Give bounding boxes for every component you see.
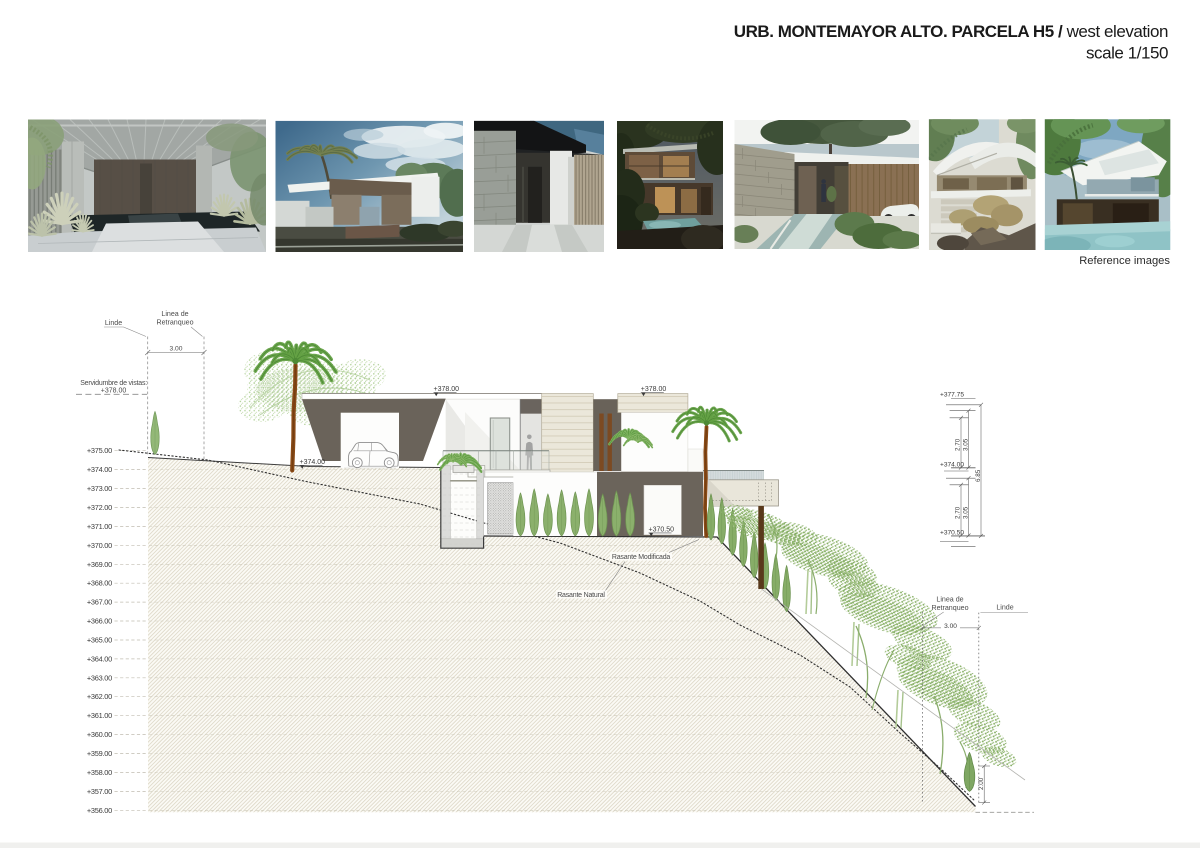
- svg-text:URB. MONTEMAYOR ALTO. PARCELA: URB. MONTEMAYOR ALTO. PARCELA H5 / west …: [734, 22, 1168, 41]
- svg-text:+372.00: +372.00: [87, 503, 112, 512]
- svg-text:+360.00: +360.00: [87, 730, 112, 739]
- svg-text:+378.00: +378.00: [434, 386, 460, 393]
- svg-text:+371.00: +371.00: [87, 522, 112, 531]
- svg-text:+367.00: +367.00: [87, 598, 112, 607]
- svg-text:+356.00: +356.00: [87, 806, 112, 815]
- svg-text:2.70: 2.70: [955, 438, 962, 451]
- svg-text:+361.00: +361.00: [87, 711, 112, 720]
- svg-text:+358.00: +358.00: [87, 768, 112, 777]
- svg-text:Reference images: Reference images: [1079, 255, 1170, 267]
- svg-text:+378.00: +378.00: [641, 386, 667, 393]
- svg-text:+359.00: +359.00: [87, 749, 112, 758]
- svg-text:Retranqueo: Retranqueo: [931, 604, 968, 612]
- svg-text:Linde: Linde: [105, 319, 122, 327]
- svg-text:Retranqueo: Retranqueo: [156, 318, 193, 326]
- svg-text:2.00: 2.00: [978, 777, 985, 790]
- svg-text:Linde: Linde: [996, 604, 1013, 612]
- svg-text:+370.50: +370.50: [940, 529, 964, 536]
- svg-text:3.00: 3.00: [169, 345, 182, 352]
- svg-text:3.00: 3.00: [944, 623, 957, 630]
- svg-text:+363.00: +363.00: [87, 673, 112, 682]
- svg-text:scale 1/150: scale 1/150: [1086, 44, 1168, 63]
- svg-text:+370.00: +370.00: [87, 541, 112, 550]
- svg-text:+357.00: +357.00: [87, 787, 112, 796]
- svg-text:+374.00: +374.00: [300, 459, 326, 466]
- svg-text:Servidumbre de vistas:: Servidumbre de vistas:: [80, 380, 147, 387]
- svg-text:+377.75: +377.75: [940, 391, 964, 398]
- svg-text:+368.00: +368.00: [87, 579, 112, 588]
- svg-text:+365.00: +365.00: [87, 636, 112, 645]
- svg-text:+366.00: +366.00: [87, 617, 112, 626]
- svg-text:Rasante Natural: Rasante Natural: [557, 592, 605, 599]
- svg-text:Linea de: Linea de: [161, 310, 188, 318]
- svg-text:+370.50: +370.50: [649, 527, 675, 534]
- svg-text:+375.00: +375.00: [87, 446, 112, 455]
- svg-text:Linea de: Linea de: [936, 596, 963, 604]
- svg-text:+364.00: +364.00: [87, 654, 112, 663]
- svg-text:+378.00: +378.00: [101, 387, 127, 394]
- svg-text:2.70: 2.70: [955, 506, 962, 519]
- svg-text:3.05: 3.05: [962, 506, 969, 519]
- svg-text:+373.00: +373.00: [87, 484, 112, 493]
- svg-text:3.05: 3.05: [962, 438, 969, 451]
- svg-text:+362.00: +362.00: [87, 692, 112, 701]
- svg-text:+374.00: +374.00: [87, 465, 112, 474]
- svg-text:Rasante Modificada: Rasante Modificada: [612, 554, 671, 561]
- svg-text:6.85: 6.85: [975, 469, 982, 482]
- svg-text:+369.00: +369.00: [87, 560, 112, 569]
